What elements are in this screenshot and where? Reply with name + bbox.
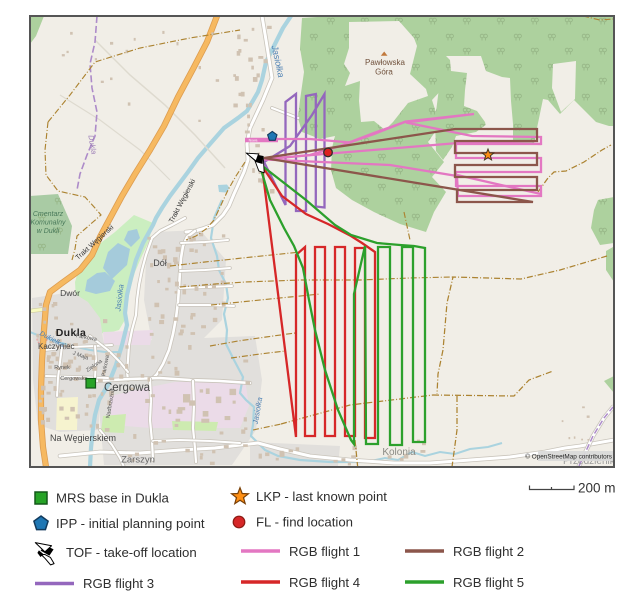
svg-text:RGB flight 3: RGB flight 3	[83, 576, 154, 591]
svg-text:LKP - last known point: LKP - last known point	[256, 489, 387, 504]
svg-text:Dół: Dół	[153, 258, 167, 268]
svg-text:Pawłowska: Pawłowska	[365, 58, 406, 67]
svg-text:RGB flight 4: RGB flight 4	[289, 575, 360, 590]
svg-text:Kolonia: Kolonia	[382, 447, 416, 458]
svg-text:FL - find location: FL - find location	[256, 515, 353, 530]
svg-text:MRS base in Dukla: MRS base in Dukla	[56, 491, 170, 506]
svg-text:Nowa: Nowa	[249, 139, 258, 143]
svg-text:RGB flight 5: RGB flight 5	[453, 575, 524, 590]
svg-text:Rynek: Rynek	[54, 365, 70, 371]
svg-text:Komunalny: Komunalny	[30, 220, 66, 227]
svg-text:Na Węgierskiem: Na Węgierskiem	[50, 433, 116, 443]
svg-text:Cergowska: Cergowska	[60, 376, 88, 382]
svg-text:© OpenStreetMap contributors: © OpenStreetMap contributors	[525, 453, 612, 461]
svg-text:IPP - initial planning point: IPP - initial planning point	[56, 516, 205, 531]
svg-text:RGB flight 2: RGB flight 2	[453, 544, 524, 559]
svg-text:Dwór: Dwór	[60, 288, 80, 298]
svg-text:Cmentarz: Cmentarz	[33, 211, 64, 218]
svg-text:Zarszyn: Zarszyn	[121, 455, 155, 466]
svg-text:TOF - take-off location: TOF - take-off location	[66, 545, 197, 560]
svg-text:Góra: Góra	[375, 68, 393, 77]
svg-text:Kaczyniec: Kaczyniec	[38, 342, 74, 351]
svg-text:200 m: 200 m	[578, 481, 616, 496]
svg-text:w Dukli: w Dukli	[37, 228, 60, 235]
svg-text:RGB flight 1: RGB flight 1	[289, 544, 360, 559]
